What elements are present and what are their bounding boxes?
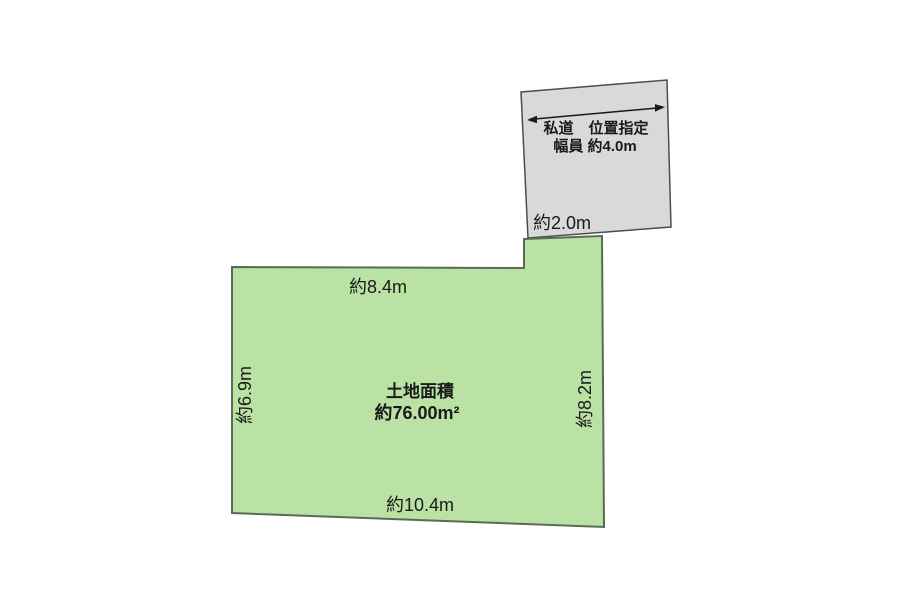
left-dimension-label: 約6.9m [235, 366, 255, 424]
road-label-line2: 幅員 約4.0m [553, 137, 636, 155]
right-dimension-label: 約8.2m [575, 370, 595, 428]
land-area-title: 土地面積 [386, 381, 455, 401]
top-dimension-label: 約8.4m [349, 277, 407, 297]
land-plot-diagram: 私道 位置指定 幅員 約4.0m 約2.0m 約8.4m 約6.9m 約8.2m… [0, 0, 900, 599]
setback-dimension-label: 約2.0m [533, 213, 591, 233]
road-label-line1: 私道 位置指定 [542, 119, 648, 137]
land-area-value: 約76.00m² [374, 402, 459, 423]
bottom-dimension-label: 約10.4m [386, 495, 454, 515]
land-diagram-canvas: 私道 位置指定 幅員 約4.0m 約2.0m 約8.4m 約6.9m 約8.2m… [0, 0, 900, 599]
